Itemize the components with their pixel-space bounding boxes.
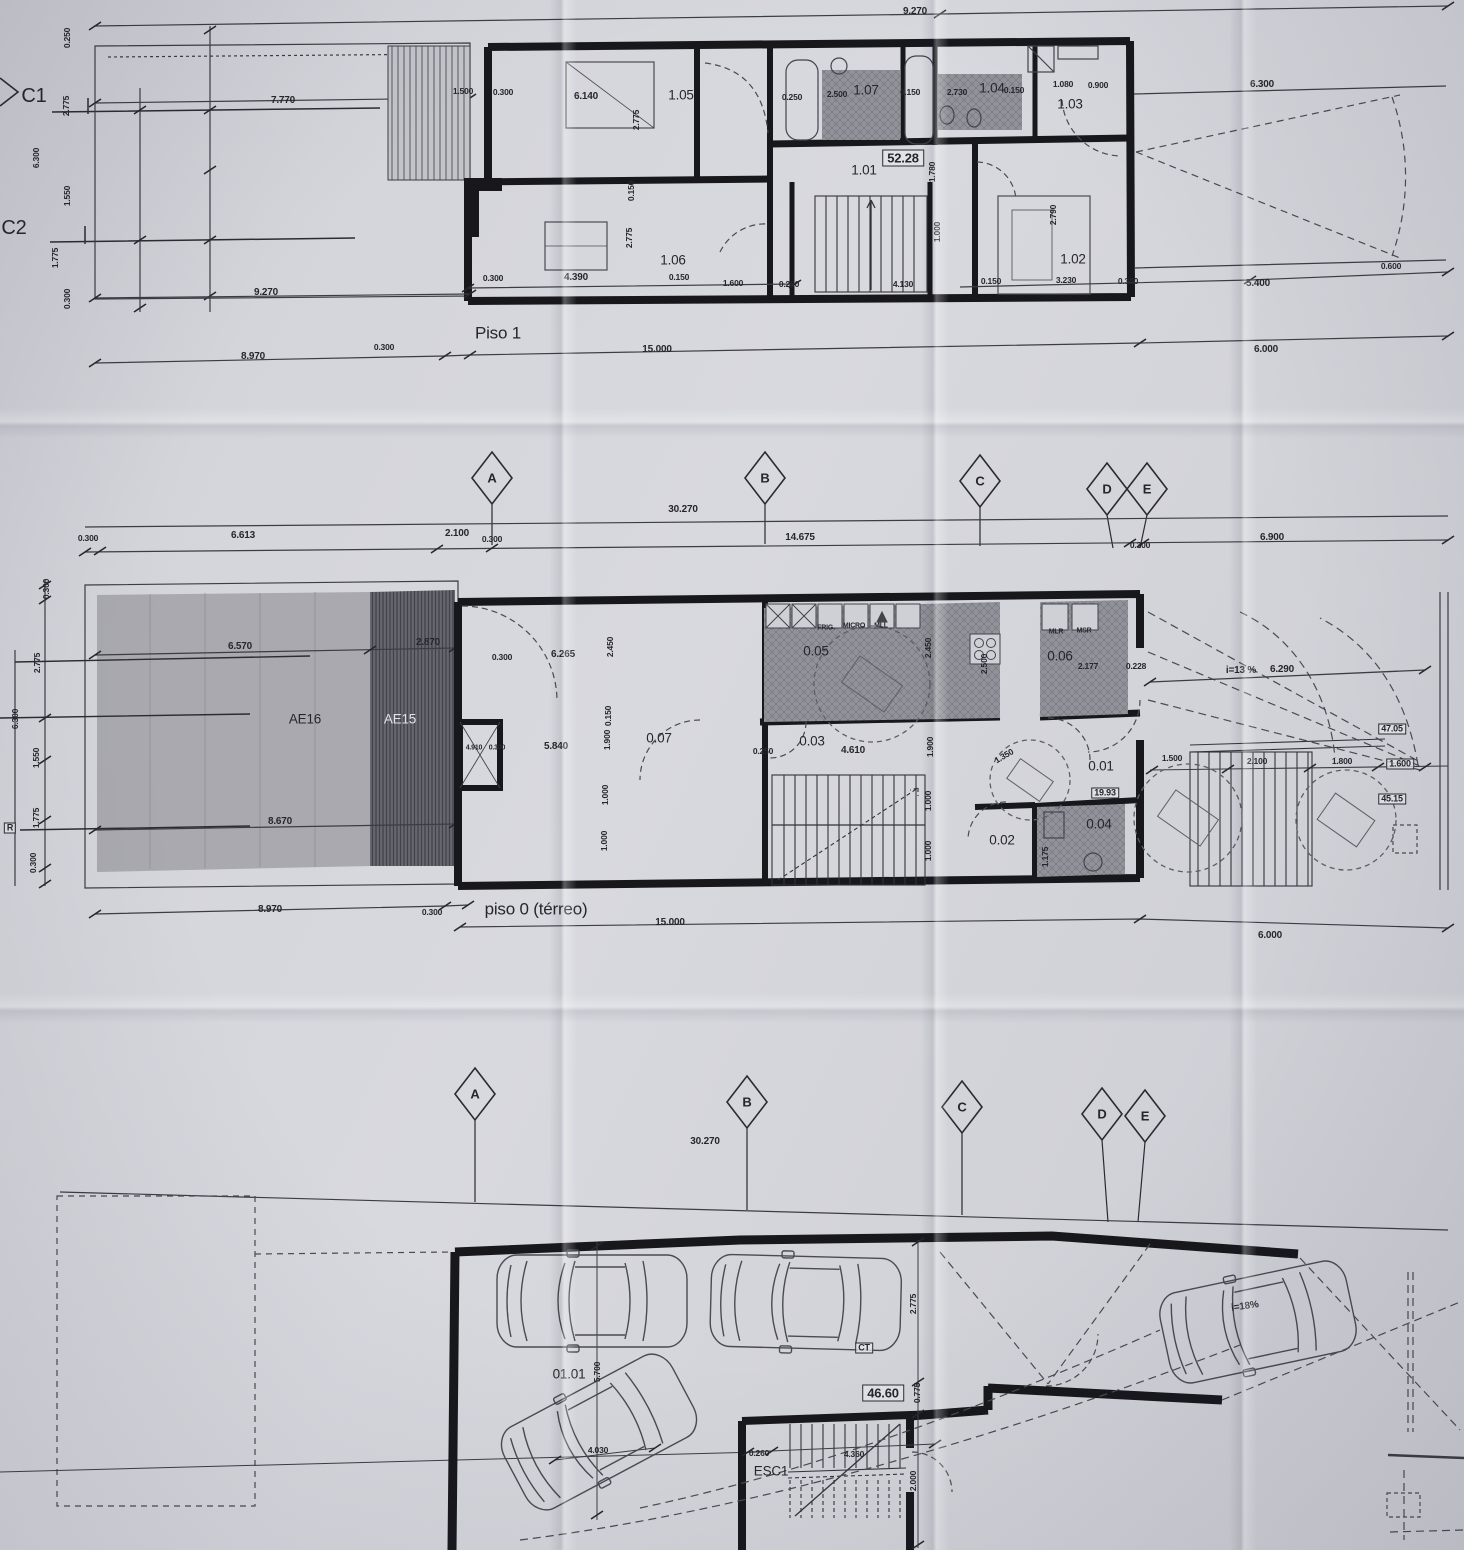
grid-bubbles <box>472 452 1167 548</box>
ramp-car <box>1154 1252 1361 1391</box>
stairs <box>788 1424 906 1518</box>
piso0-drawing <box>0 452 1454 932</box>
scanned-floorplan-sheet: Piso 1 piso 0 (térreo) 9.270C1C20.2502.7… <box>0 0 1464 1550</box>
piso1-drawing <box>0 2 1454 367</box>
floorplan-drawing <box>0 0 1464 1550</box>
maneuver-car <box>491 1342 707 1521</box>
stairs <box>772 775 925 885</box>
stairs <box>815 196 927 292</box>
parked-car-2 <box>709 1249 902 1356</box>
grid-bubbles <box>455 1068 1165 1222</box>
stairs-right <box>1190 739 1385 886</box>
parked-car-1 <box>497 1250 687 1352</box>
garagem-drawing <box>0 1068 1464 1550</box>
